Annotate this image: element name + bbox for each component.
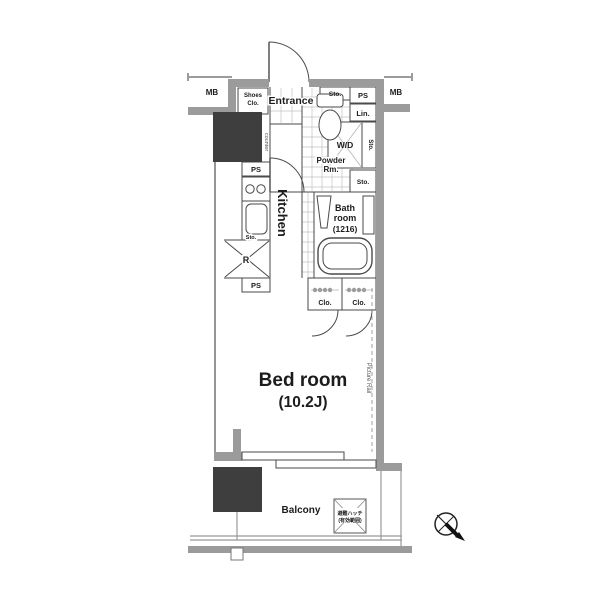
balcony-label: Balcony bbox=[282, 505, 321, 516]
floor-plan-drawing: MB MB Shoes Clo. Entrance Sto. PS Lin. W… bbox=[0, 0, 605, 603]
bedroom-name-label: Bed room bbox=[259, 370, 348, 391]
bathroom-label-line1: Bath bbox=[335, 203, 355, 213]
storage-right-label: Sto. bbox=[357, 179, 369, 186]
closet-left-door-arc bbox=[312, 310, 338, 336]
hall-door-arc bbox=[270, 158, 304, 192]
pipe-shaft-bottom bbox=[213, 467, 262, 512]
entrance-door-arc bbox=[269, 42, 309, 82]
walls bbox=[188, 73, 412, 512]
refrigerator-label: R bbox=[243, 255, 250, 265]
wall-nw-corner bbox=[228, 79, 236, 115]
wall-stub-right-bottom bbox=[376, 463, 402, 471]
sink-icon bbox=[246, 204, 267, 234]
compass-icon bbox=[435, 513, 465, 541]
closet-right-door-arc bbox=[346, 310, 372, 336]
shoes-closet-label-line1: Shoes bbox=[244, 93, 263, 99]
bedroom-size-label: (10.2J) bbox=[278, 394, 327, 411]
bathroom-label-line2: room bbox=[334, 213, 357, 223]
counter-label: counter bbox=[263, 133, 269, 152]
pipe-shaft-top bbox=[213, 112, 262, 162]
picture-rail-label: Picture Rail bbox=[365, 363, 371, 394]
powder-room-label-line1: Powder bbox=[317, 156, 346, 165]
storage-top-label: Sto. bbox=[329, 91, 341, 98]
storage-side-label: Sto. bbox=[367, 139, 373, 151]
shoes-closet-label-line2: Clo. bbox=[247, 101, 259, 107]
balcony-bottom-band bbox=[188, 546, 412, 553]
window-slider bbox=[242, 452, 376, 468]
wall-stub-right-top bbox=[384, 104, 410, 112]
powder-room-label-line2: Rm. bbox=[323, 165, 338, 174]
linen-label: Lin. bbox=[356, 109, 369, 118]
closet-left-label: Clo. bbox=[318, 300, 331, 307]
floor-plan: MB MB Shoes Clo. Entrance Sto. PS Lin. W… bbox=[0, 0, 605, 603]
washer-dryer-label: W/D bbox=[337, 140, 354, 150]
balcony-drain-box bbox=[231, 548, 243, 560]
wall-right bbox=[376, 79, 384, 463]
bathtub-inner bbox=[323, 243, 367, 269]
pipe-space-top-right-label: PS bbox=[358, 91, 368, 100]
bathroom-label-line3: (1216) bbox=[333, 224, 358, 234]
bath-vanity bbox=[363, 196, 374, 234]
kitchen-ps-top-label: PS bbox=[251, 165, 261, 174]
closet-right-label: Clo. bbox=[352, 300, 365, 307]
hatch-label-line1: 避難ハッチ bbox=[336, 510, 362, 517]
toilet-icon bbox=[317, 94, 343, 140]
wall-window-jamb bbox=[233, 429, 241, 460]
hatch-label-line2: (有効範囲) bbox=[338, 517, 362, 524]
mb-right-label: MB bbox=[390, 88, 403, 97]
mb-left-label: MB bbox=[206, 88, 219, 97]
kitchen-fixtures bbox=[224, 162, 270, 292]
closet-hangers-icon bbox=[313, 288, 366, 292]
bath-door bbox=[317, 196, 331, 228]
kitchen-label: Kitchen bbox=[275, 189, 290, 237]
entrance-label: Entrance bbox=[269, 95, 314, 107]
wall-top-right bbox=[309, 79, 384, 87]
kitchen-ps-bottom-label: PS bbox=[251, 281, 261, 290]
sink-storage-label: Sto. bbox=[246, 235, 257, 241]
closets bbox=[308, 278, 376, 336]
